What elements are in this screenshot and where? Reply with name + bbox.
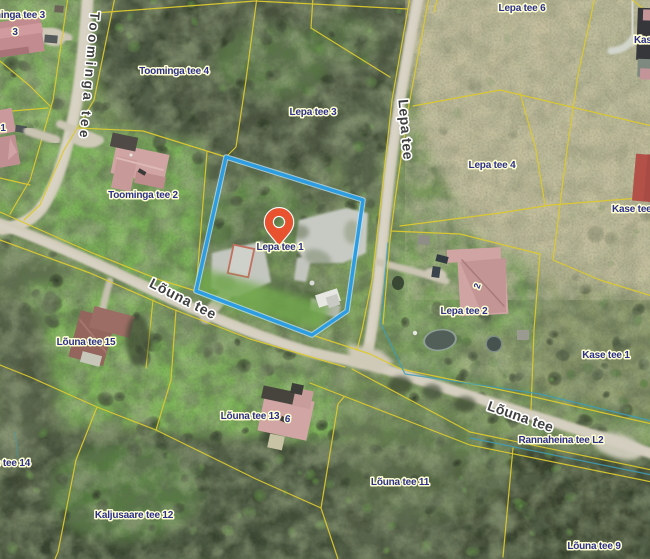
svg-text:Lõuna tee 15: Lõuna tee 15 — [57, 337, 116, 348]
svg-text:Toominga tee 4: Toominga tee 4 — [139, 66, 209, 77]
svg-text:Kaljusaare tee 12: Kaljusaare tee 12 — [95, 510, 174, 521]
svg-text:Lepa tee 1: Lepa tee 1 — [257, 242, 305, 253]
svg-text:Lepa tee 2: Lepa tee 2 — [441, 306, 489, 317]
svg-text:minga tee 3: minga tee 3 — [0, 10, 46, 21]
svg-text:Toominga tee 2: Toominga tee 2 — [108, 190, 178, 201]
svg-text:1: 1 — [0, 123, 6, 134]
svg-text:3: 3 — [12, 27, 18, 38]
svg-text:Kase tee 1: Kase tee 1 — [582, 350, 630, 361]
svg-text:Lepa tee 6: Lepa tee 6 — [499, 3, 547, 14]
svg-text:Kase tee: Kase tee — [634, 35, 650, 46]
svg-text:Rannaheina tee L2: Rannaheina tee L2 — [519, 435, 605, 446]
svg-text:are tee 14: are tee 14 — [0, 458, 31, 469]
svg-text:Lõuna tee 11: Lõuna tee 11 — [371, 477, 430, 488]
svg-text:Lepa tee 3: Lepa tee 3 — [290, 107, 338, 118]
svg-text:Lõuna tee 13: Lõuna tee 13 — [221, 411, 280, 422]
svg-text:Kase tee 3: Kase tee 3 — [612, 204, 650, 215]
svg-text:Lepa tee 4: Lepa tee 4 — [469, 160, 517, 171]
svg-text:Lõuna tee 9: Lõuna tee 9 — [567, 541, 621, 552]
